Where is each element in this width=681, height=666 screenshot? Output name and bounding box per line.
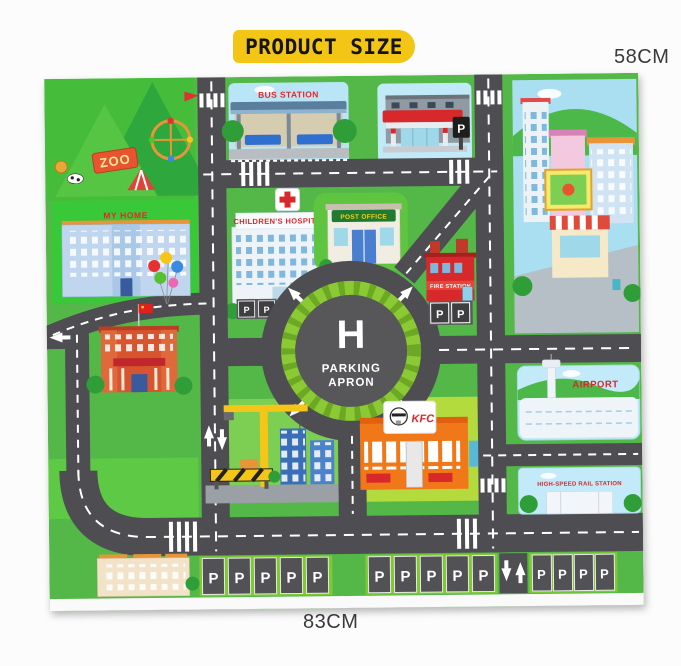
my-home-label: MY HOME (103, 210, 148, 220)
awning-shop (550, 215, 611, 278)
width-dimension-label: 83CM (303, 611, 358, 634)
trash-bin-icon (612, 279, 620, 290)
flag-icon (139, 304, 153, 313)
parking-p-sign: P (264, 305, 270, 315)
play-mat-photo: ZOO CHILDREN' (44, 73, 644, 611)
rail-station-label: HIGH-SPEED RAIL STATION (537, 481, 622, 488)
parking-p-sign: P (426, 568, 436, 585)
parking-p-sign: P (436, 309, 443, 321)
parking-p-sign: P (234, 570, 244, 587)
hospital-label: CHILDREN'S HOSPITAL (233, 216, 326, 226)
parking-p-sign: P (260, 570, 270, 587)
cow-icon (67, 174, 83, 184)
airport-panel: AIRPORT (517, 353, 640, 440)
parking-p-sign: P (457, 309, 464, 321)
parking-apron-roundabout: H PARKING APRON (287, 287, 414, 414)
parking-p-sign: P (286, 570, 296, 587)
rail-station-panel: HIGH-SPEED RAIL STATION (518, 467, 641, 514)
parking-apron-label-1: PARKING (322, 363, 381, 376)
parking-p-sign: P (400, 568, 410, 585)
height-dimension-label: 58CM (614, 46, 669, 69)
play-mat-graphic: ZOO CHILDREN' (44, 73, 644, 611)
parking-p-sign: P (374, 569, 384, 586)
product-size-page: PRODUCT SIZE 58CM 83CM ZOO (0, 0, 681, 666)
post-office-label: POST OFFICE (340, 214, 387, 221)
kfc-sign: KFC (384, 401, 436, 434)
city-street (510, 88, 642, 333)
apartment-building (97, 554, 199, 597)
fire-station-parking: P P (429, 301, 473, 325)
parking-p-sign: P (558, 567, 567, 582)
zoo-area: ZOO (44, 77, 213, 201)
parking-p-sign: P (457, 122, 465, 136)
parking-p-sign: P (312, 569, 322, 586)
billboard-icon (545, 169, 591, 209)
parking-p-sign: P (244, 305, 250, 315)
bus-station-label: BUS STATION (258, 89, 319, 100)
lion-icon (55, 161, 67, 173)
parking-p-sign: P (579, 566, 588, 581)
parking-p-sign: P (478, 568, 488, 585)
post-office: POST OFFICE (313, 192, 408, 273)
kfc-label: KFC (411, 413, 435, 425)
bench-icon (245, 135, 281, 145)
heliport-h-label: H (336, 313, 365, 357)
parking-p-sign: P (537, 567, 546, 582)
parking-p-sign: P (452, 568, 462, 585)
vending-machine-icon (469, 441, 478, 467)
product-size-badge: PRODUCT SIZE (233, 30, 415, 63)
bench-icon (297, 134, 333, 144)
parking-p-sign: P (208, 570, 218, 587)
bottom-parking-row: P P P P P P P P P P P P P (199, 552, 617, 596)
airport-label: AIRPORT (572, 379, 618, 390)
parking-p-sign: P (600, 566, 609, 581)
parking-apron-label-2: APRON (328, 377, 375, 389)
